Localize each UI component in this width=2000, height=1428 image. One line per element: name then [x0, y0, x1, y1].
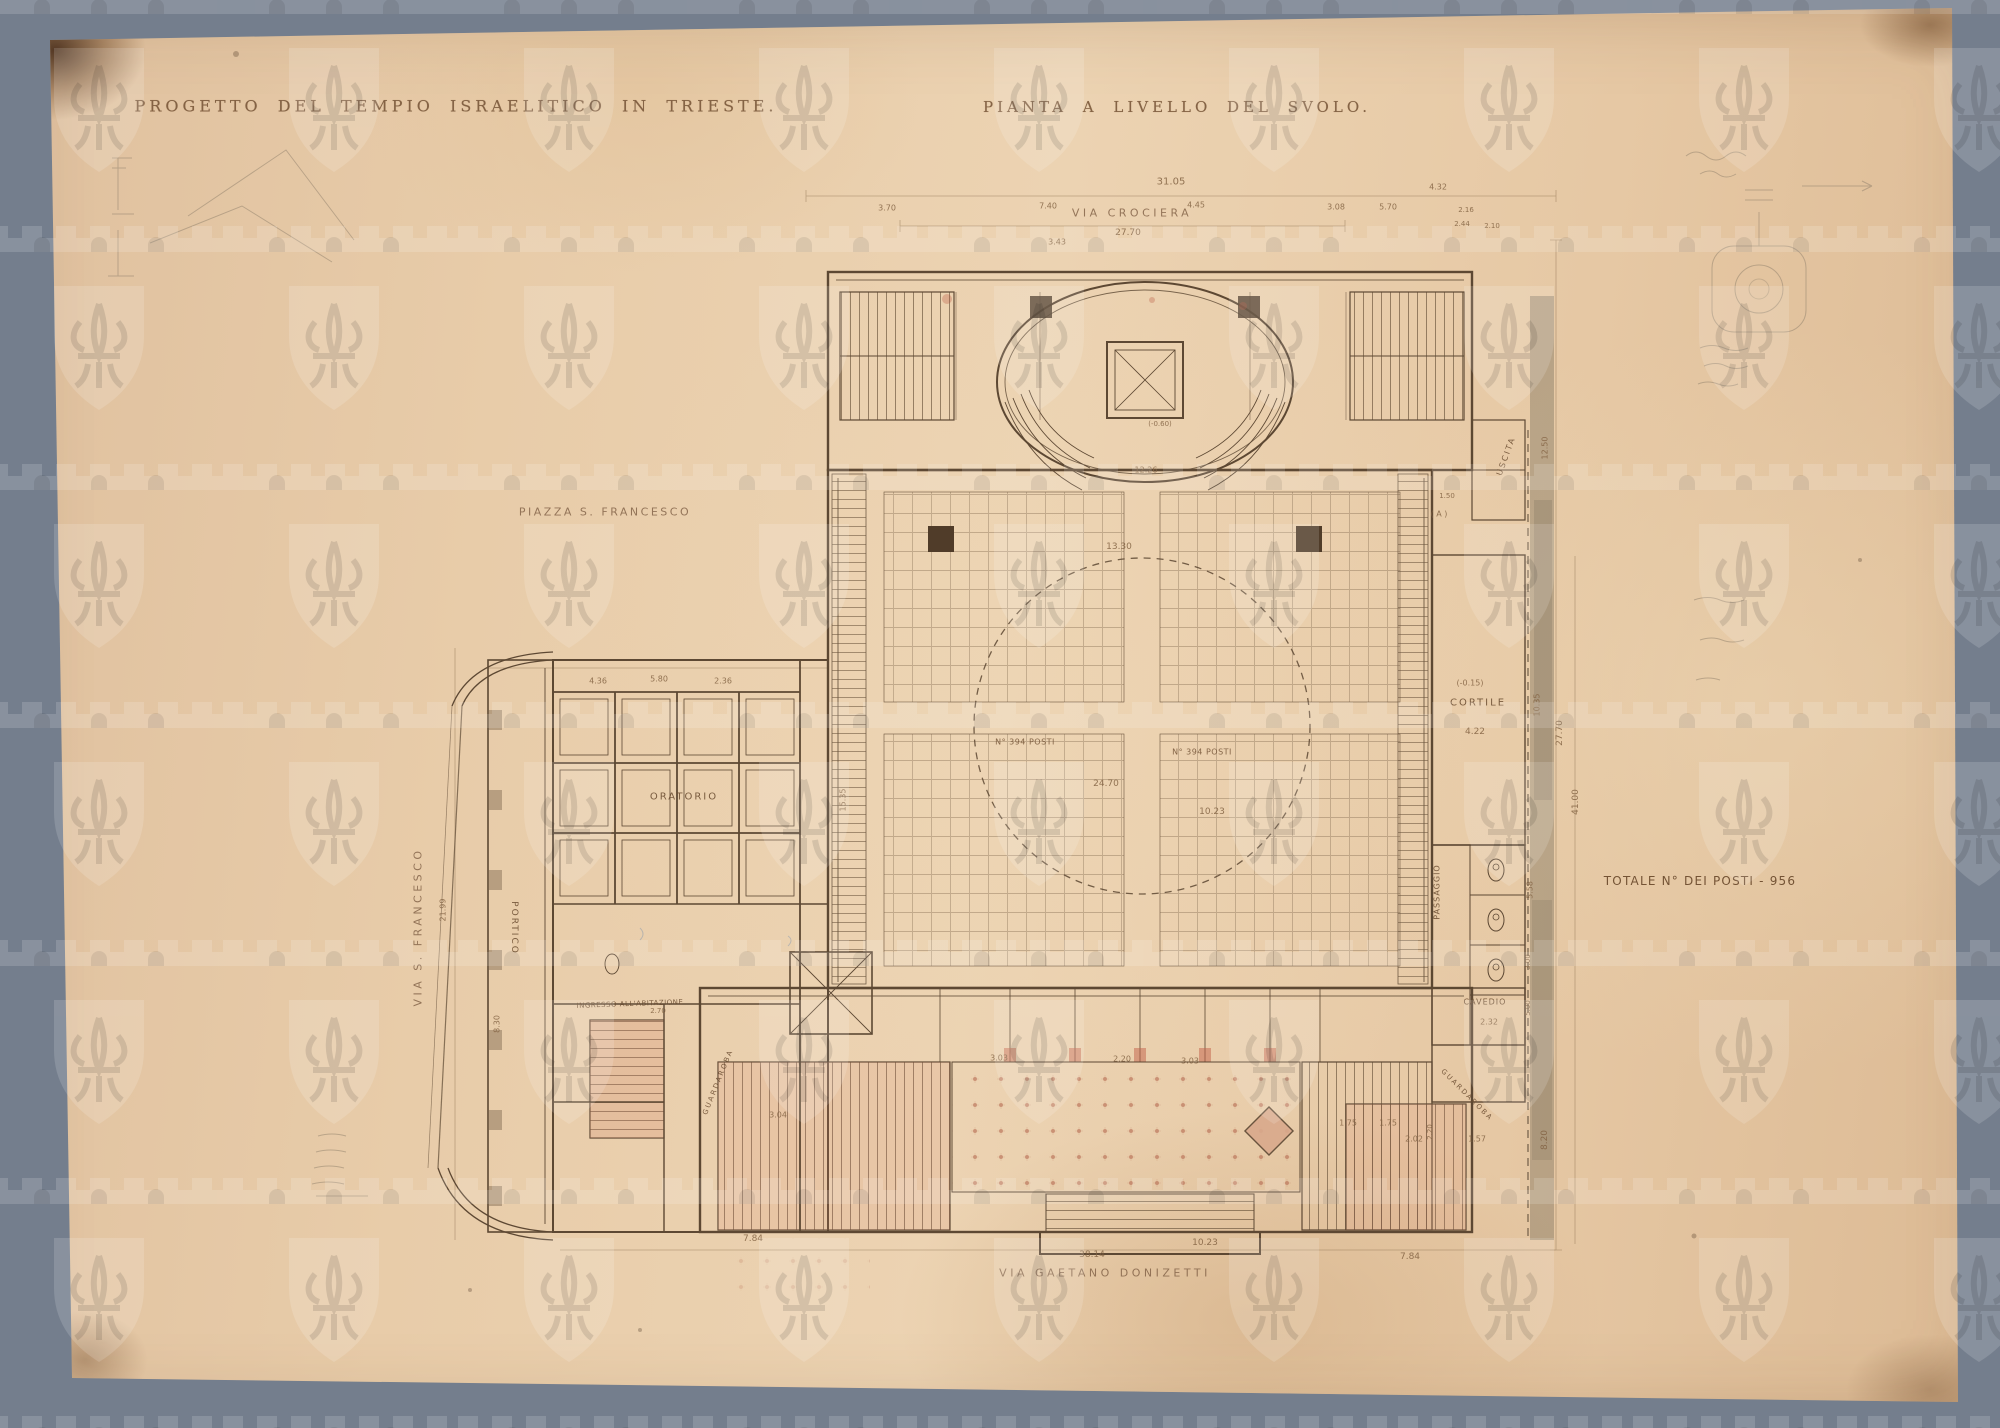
dimension-label: 13.30	[1106, 542, 1132, 552]
shield-watermark-icon	[452, 1416, 687, 1428]
dimension-label: 8.30	[493, 1015, 502, 1033]
dimension-label: 3.03	[990, 1054, 1008, 1063]
street-piazza-s-francesco: PIAZZA S. FRANCESCO	[519, 506, 691, 519]
dimension-label: 2.16	[1458, 206, 1474, 214]
dimension-label: 1.50	[1439, 492, 1455, 500]
dimension-label: (-0.60)	[1148, 420, 1172, 428]
dimension-label: 2.20	[1426, 1124, 1434, 1140]
dimension-label: 41.00	[1571, 789, 1581, 815]
dimension-label: 3.70	[878, 204, 896, 213]
dimension-label: 2.02	[1405, 1135, 1423, 1144]
dimension-label: 5.00	[1524, 1000, 1532, 1016]
shield-watermark-icon	[687, 1416, 922, 1428]
dimension-label: 1.75	[1339, 1119, 1357, 1128]
dimension-label: 1.75	[1379, 1119, 1397, 1128]
shield-watermark-icon	[217, 1416, 452, 1428]
seat-count-right: N° 394 POSTI	[1172, 748, 1232, 757]
dimension-label: 10.35	[1533, 694, 1542, 717]
room-cavedio: CAVEDIO	[1464, 998, 1507, 1007]
dimension-label: 3.03	[1181, 1057, 1199, 1066]
dimension-label: 3.00	[1524, 954, 1532, 970]
shield-watermark-icon	[1392, 1416, 1627, 1428]
dimension-label: 38.14	[1079, 1250, 1105, 1260]
dimension-label: 10.23	[1192, 1238, 1218, 1248]
shield-watermark-icon	[1862, 1416, 2000, 1428]
dimension-label: 5.80	[650, 675, 668, 684]
street-via-crociera: VIA CROCIERA	[1072, 207, 1192, 220]
dimension-label: 27.70	[1115, 228, 1141, 238]
paper-edge-shading	[0, 0, 2000, 1428]
shield-watermark-icon	[0, 1416, 217, 1428]
room-cortile: CORTILE	[1450, 698, 1506, 709]
dimension-label: 3.43	[1048, 238, 1066, 247]
dimension-label: 4.22	[1465, 727, 1485, 737]
dimension-label: 5.58	[1526, 881, 1535, 899]
shield-watermark-icon	[1157, 1416, 1392, 1428]
dimension-label: 1.57	[1468, 1135, 1486, 1144]
dimension-label: 7.40	[1039, 202, 1057, 211]
dimension-label: 31.05	[1157, 177, 1186, 188]
dimension-label: 12.50	[1541, 437, 1550, 460]
room-oratorio: ORATORIO	[650, 792, 718, 803]
dimension-label: 2.20	[1113, 1055, 1131, 1064]
dimension-label: 21.99	[439, 899, 448, 922]
dimension-label: 2.36	[714, 677, 732, 686]
dimension-label: 15.35	[839, 789, 848, 812]
dimension-label: 3.04	[769, 1111, 787, 1120]
shield-watermark-icon	[1627, 1416, 1862, 1428]
dimension-label: 8.20	[1540, 1130, 1550, 1150]
dimension-label: 2.70	[650, 1007, 666, 1015]
seat-count-left: N° 394 POSTI	[995, 738, 1055, 747]
room-portico: PORTICO	[509, 901, 519, 955]
plan-subtitle: PIANTA A LIVELLO DEL SVOLO.	[983, 98, 1371, 116]
dimension-label: 24.70	[1093, 779, 1119, 789]
dimension-label: 3.08	[1327, 203, 1345, 212]
street-via-s-francesco: VIA S. FRANCESCO	[412, 848, 425, 1007]
shield-watermark-icon	[922, 1416, 1157, 1428]
drawing-title: PROGETTO DEL TEMPIO ISRAELITICO IN TRIES…	[135, 97, 778, 116]
dimension-label: 27.70	[1555, 720, 1565, 746]
dimension-label: 7.84	[743, 1234, 763, 1244]
dimension-label: 5.70	[1379, 203, 1397, 212]
dimension-label: 2.32	[1480, 1018, 1498, 1027]
room-passaggio: PASSAGGIO	[1433, 864, 1442, 919]
total-seats-note: TOTALE N° DEI POSTI - 956	[1604, 874, 1796, 888]
dimension-label: 4.32	[1429, 183, 1447, 192]
dimension-label: 10.23	[1199, 807, 1225, 817]
dimension-label: 4.45	[1187, 201, 1205, 210]
dimension-label: ( A )	[1431, 510, 1448, 519]
dimension-label: (-0.15)	[1457, 679, 1484, 688]
dimension-label: 2.10	[1484, 222, 1500, 230]
dimension-label: 4.36	[589, 677, 607, 686]
dimension-label: 12.26	[1135, 466, 1158, 475]
dimension-label: 7.84	[1400, 1252, 1420, 1262]
drawing-sheet	[0, 0, 2000, 1428]
dimension-label: 2.44	[1454, 220, 1470, 228]
scanned-drawing: PROGETTO DEL TEMPIO ISRAELITICO IN TRIES…	[0, 0, 2000, 1428]
street-via-gaetano-donizetti: VIA GAETANO DONIZETTI	[999, 1267, 1211, 1280]
